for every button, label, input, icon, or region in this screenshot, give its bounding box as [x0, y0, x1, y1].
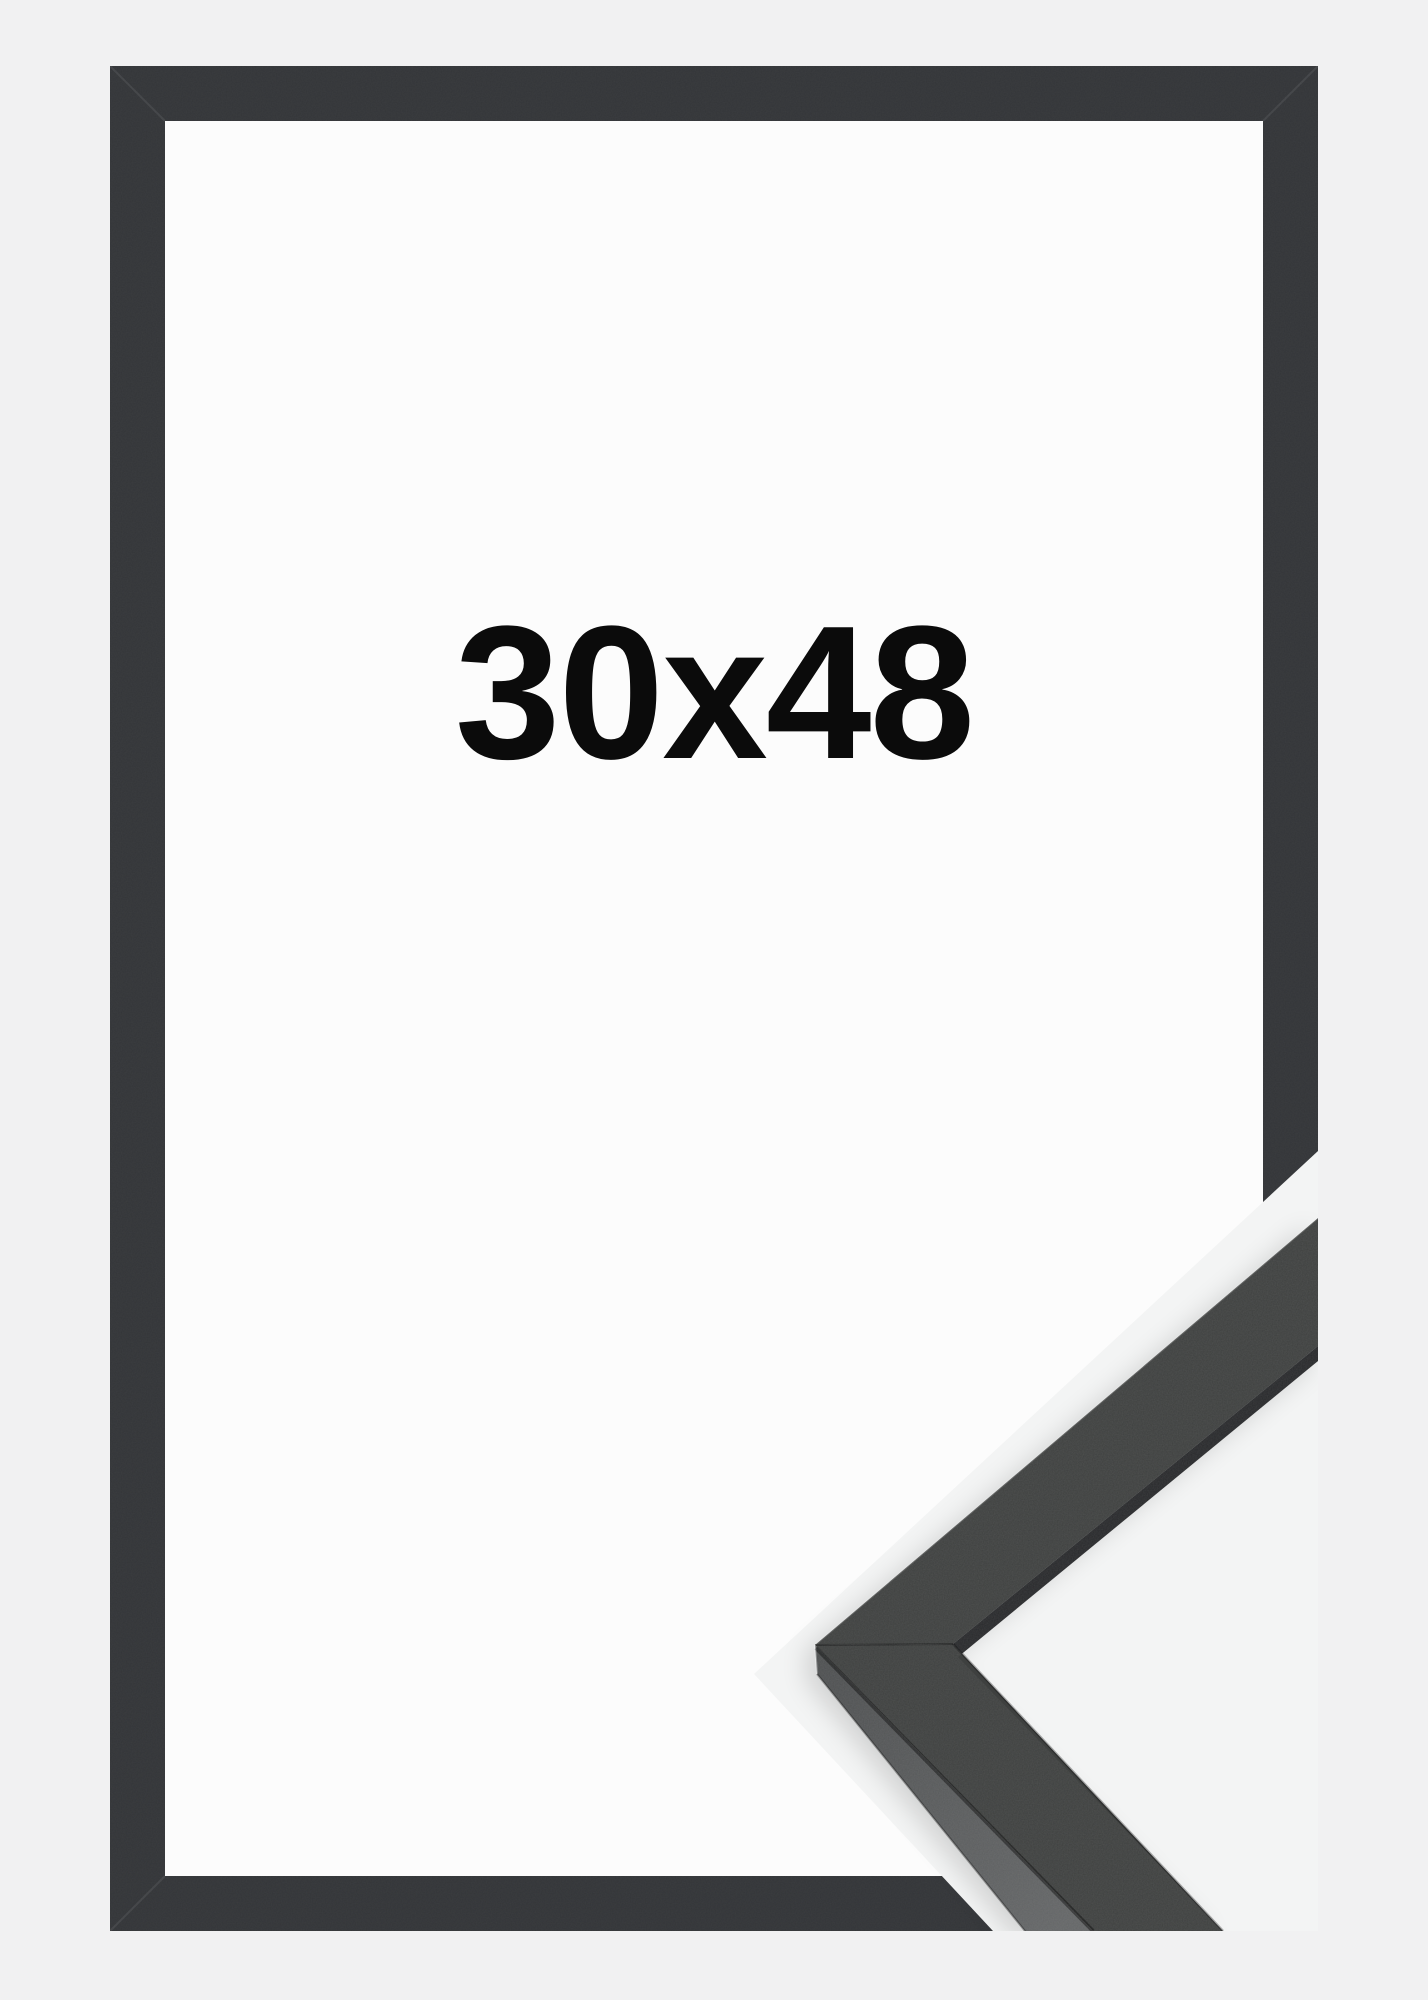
frame-product-image: 30x48	[0, 0, 1428, 2000]
size-label: 30x48	[0, 598, 1428, 788]
frame-graphic-svg	[0, 0, 1428, 2000]
